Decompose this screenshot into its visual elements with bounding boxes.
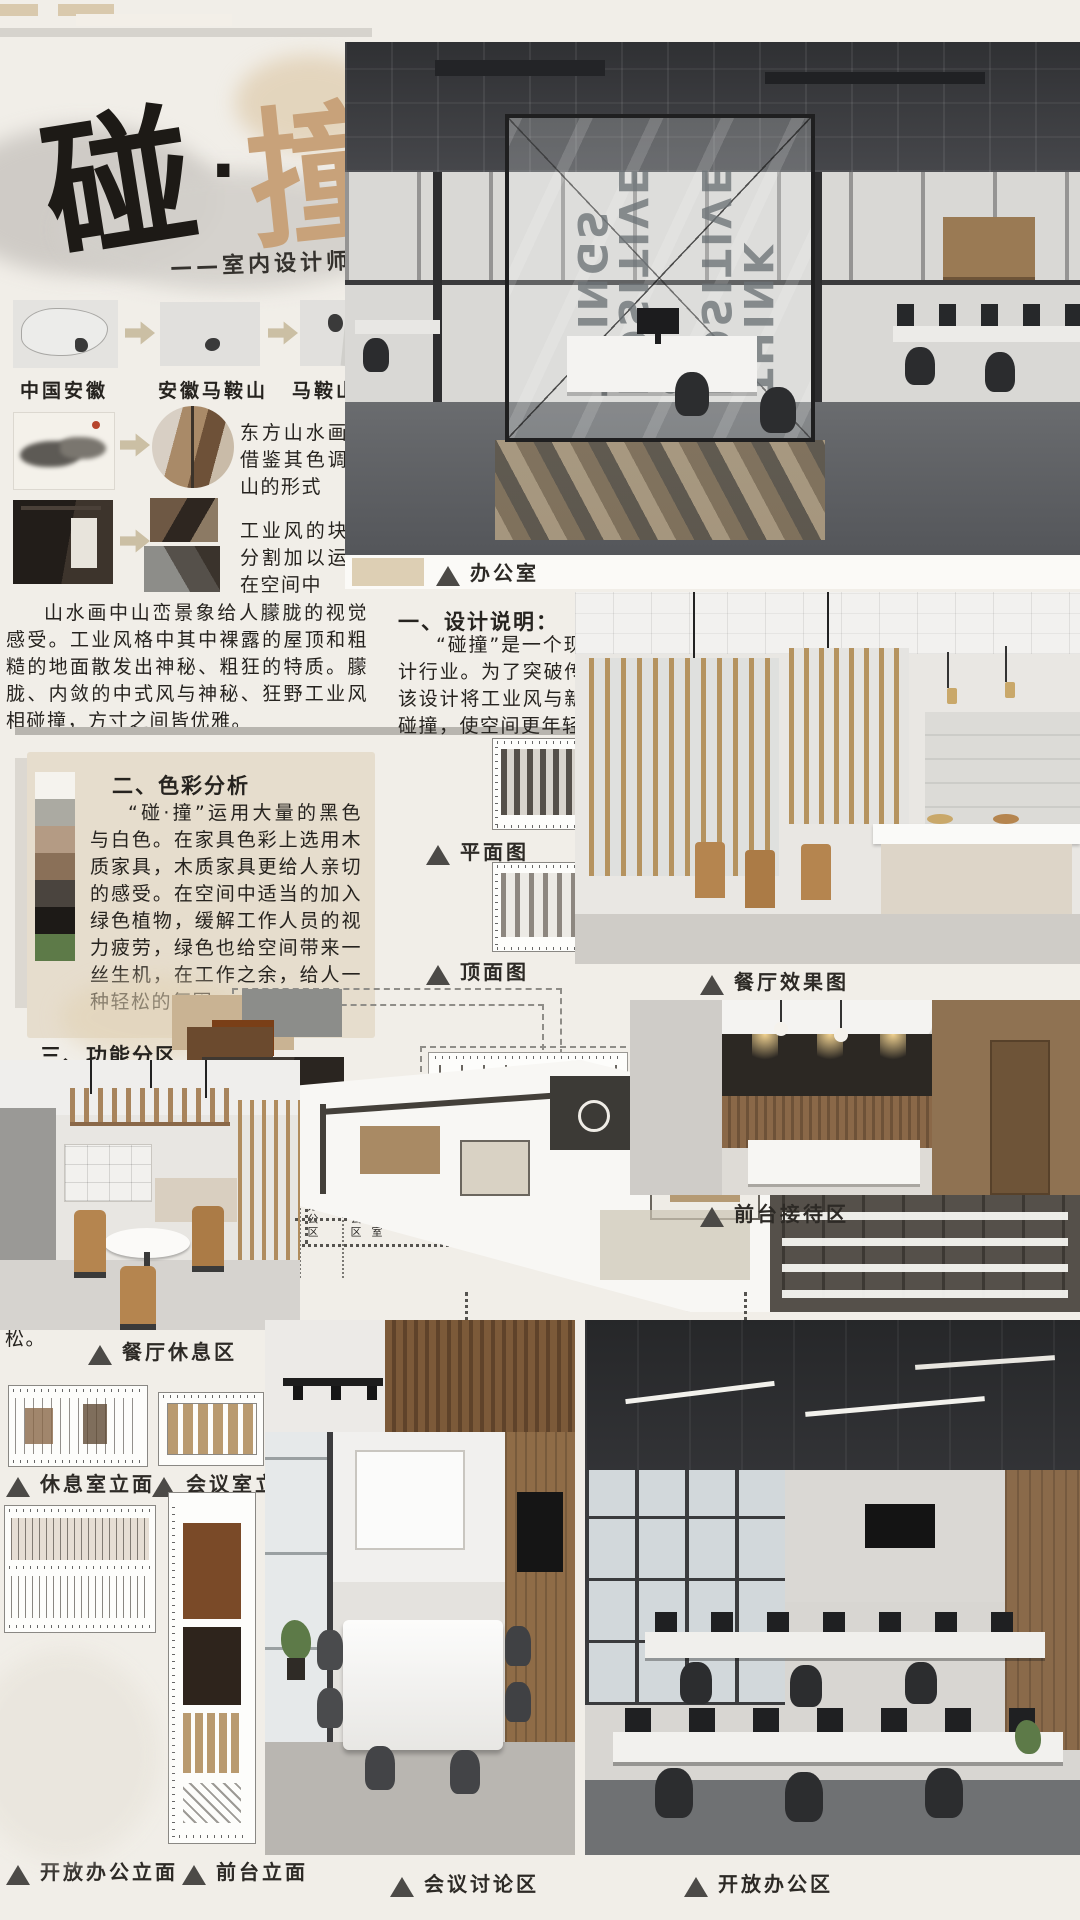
dining-rendering-photo (575, 592, 1080, 964)
triangle-icon (684, 1877, 708, 1897)
arrow-icon (268, 320, 298, 346)
color-swatch (35, 799, 75, 826)
monitor (637, 308, 679, 334)
decor-strip (76, 14, 232, 26)
pendant-light (1005, 682, 1015, 698)
meeting-room-elevation-drawing (158, 1392, 264, 1466)
office-chair (680, 1662, 712, 1704)
caption-label: 开放办公立面 (40, 1856, 178, 1885)
tv-screen (865, 1504, 935, 1548)
caption-ceiling-plan: 顶面图 (426, 956, 529, 985)
wood-chair (695, 842, 725, 898)
wood-wall (932, 1000, 1080, 1195)
door (990, 1040, 1050, 1195)
wood-chair (74, 1210, 106, 1278)
caption-floor-plan: 平面图 (426, 836, 529, 865)
entrance-block (550, 1076, 632, 1150)
material-thumb (150, 498, 218, 542)
color-swatch (35, 907, 75, 934)
office-chair (655, 1768, 693, 1818)
triangle-icon (700, 975, 724, 995)
plant-pot (287, 1658, 305, 1680)
caption-open-office-elevation: 开放办公立面 (6, 1856, 178, 1885)
chair (365, 1746, 395, 1790)
plant (281, 1620, 311, 1660)
office-chair (905, 347, 935, 385)
white-desk (567, 336, 757, 392)
material-thumb (144, 546, 220, 592)
decor-strip (0, 28, 372, 37)
open-office-photo (585, 1320, 1080, 1855)
dotted-connector (295, 1218, 347, 1221)
triangle-icon (426, 845, 450, 865)
design-poster: 碰 · 撞 ——室内设计师工作室 中国安徽 安徽马鞍山 马鞍山雨山 东方山水画，… (0, 0, 1080, 1920)
monitors-row (897, 304, 1080, 326)
map-label: 安徽马鞍山 (158, 376, 268, 403)
caption-label: 顶面图 (460, 956, 529, 985)
conference-table (343, 1620, 503, 1750)
triangle-icon (88, 1345, 112, 1365)
color-swatch-strip (35, 772, 75, 961)
island-counter-base (881, 844, 1072, 914)
decor-block (352, 558, 424, 586)
caption-rest-area: 餐厅休息区 (88, 1336, 237, 1365)
triangle-icon (436, 566, 460, 586)
pendant-light (774, 1022, 788, 1036)
arrow-icon (120, 432, 150, 458)
office-chair (925, 1768, 963, 1818)
office-chair (905, 1662, 937, 1704)
caption-label: 平面图 (460, 836, 529, 865)
office-chair (675, 372, 709, 416)
floor (575, 914, 1080, 964)
triangle-icon (390, 1877, 414, 1897)
projection-screen (355, 1450, 465, 1550)
map-label: 中国安徽 (20, 376, 108, 403)
ink-painting-thumb (13, 412, 115, 490)
open-office-elevation-drawing (4, 1505, 156, 1633)
dark-ceiling (585, 1320, 1080, 1470)
pendant-light (834, 1028, 848, 1042)
caption-label: 前台立面 (216, 1856, 308, 1885)
pendant-light (947, 688, 957, 704)
map-anhui (160, 302, 260, 366)
chair (317, 1630, 343, 1670)
caption-label: 餐厅效果图 (734, 966, 849, 995)
reception-photo (630, 1000, 1080, 1195)
office-chair (760, 387, 796, 433)
back-wall (785, 1470, 1005, 1602)
color-swatch (35, 826, 75, 853)
wood-cabinet (943, 217, 1035, 277)
map-china (13, 300, 118, 368)
office-chair (363, 338, 389, 372)
caption-label: 开放办公区 (718, 1868, 833, 1897)
meeting-area-photo (265, 1320, 575, 1855)
island-counter-top (873, 824, 1080, 844)
dark-cove (722, 1034, 932, 1096)
industrial-thumb (13, 500, 113, 584)
caption-label: 会议讨论区 (424, 1868, 539, 1897)
caption-reception: 前台接待区 (700, 1198, 849, 1227)
triangle-icon (6, 1865, 30, 1885)
wood-material-circle (152, 406, 234, 488)
caption-label: 休息室立面 (40, 1468, 155, 1497)
color-swatch (35, 772, 75, 799)
floor (265, 1742, 575, 1855)
chair (450, 1750, 480, 1794)
slat-screen (789, 648, 909, 824)
desk-row (893, 326, 1080, 342)
back-wall (333, 1432, 505, 1582)
caption-front-desk-elevation: 前台立面 (182, 1856, 308, 1885)
bowl (927, 814, 953, 824)
color-analysis-heading: 二、色彩分析 (112, 770, 250, 800)
front-desk-elevation-drawing (168, 1492, 256, 1844)
color-swatch (35, 934, 75, 961)
office-chair (785, 1772, 823, 1822)
hanging-slat-canopy (70, 1088, 230, 1126)
tv-screen (517, 1492, 563, 1572)
monitors-row (625, 1708, 1055, 1732)
wood-chair (192, 1206, 224, 1272)
wood-slat-ceiling (385, 1320, 575, 1432)
caption-dining: 餐厅效果图 (700, 966, 849, 995)
desk-row (613, 1732, 1063, 1762)
caption-open-office: 开放办公区 (684, 1868, 833, 1897)
desk-row (645, 1632, 1045, 1658)
color-swatch (35, 880, 75, 907)
triangle-icon (426, 965, 450, 985)
intro-paragraph: 山水画中山峦景象给人朦胧的视觉感受。工业风格中其中裸露的屋顶和粗糙的地面散发出神… (6, 600, 368, 735)
chair (505, 1682, 531, 1722)
color-swatch (35, 853, 75, 880)
dining-rest-photo (0, 1060, 300, 1330)
caption-office: 办公室 (436, 557, 539, 586)
office-rendering-photo: THINK POSITIVE & POSITIVE THINGS (345, 42, 1080, 555)
bowl (993, 814, 1019, 824)
wood-chair (120, 1266, 156, 1330)
slat-screen (589, 658, 779, 876)
triangle-icon (6, 1477, 30, 1497)
caption-label: 办公室 (470, 557, 539, 586)
office-chair (790, 1665, 822, 1707)
carpet (495, 440, 825, 540)
decor-strip (0, 4, 38, 16)
title-dot: · (210, 130, 237, 212)
caption-label: 前台接待区 (734, 1198, 849, 1227)
wood-chair (745, 850, 775, 908)
decor-strip (15, 758, 27, 1008)
caption-rest-room-elevation: 休息室立面 (6, 1468, 155, 1497)
caption-label: 餐厅休息区 (122, 1336, 237, 1365)
rest-room-elevation-drawing (8, 1385, 148, 1467)
plant (1015, 1720, 1041, 1754)
arrow-icon (125, 320, 155, 346)
triangle-icon (182, 1865, 206, 1885)
mountain-wash (0, 1650, 160, 1860)
monitors-row (655, 1612, 1045, 1632)
triangle-icon (700, 1207, 724, 1227)
chair (505, 1626, 531, 1666)
reception-desk (748, 1140, 920, 1184)
track-light (283, 1378, 383, 1386)
chair (317, 1688, 343, 1728)
office-chair (985, 352, 1015, 392)
wood-chair (801, 844, 831, 900)
wood-block (360, 1126, 440, 1174)
caption-meeting-area: 会议讨论区 (390, 1868, 539, 1897)
